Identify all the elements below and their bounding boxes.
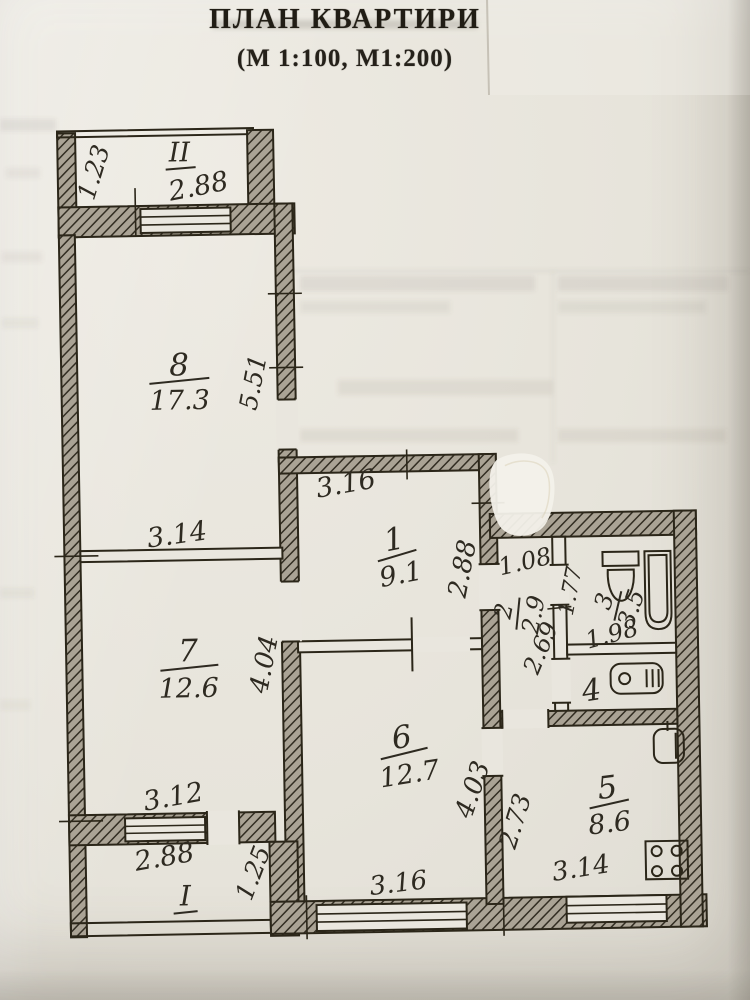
document-subtitle: (М 1:100, М1:200): [65, 45, 625, 73]
window-room8: [140, 207, 230, 233]
plan-drawing: II 2.88 1.23 8 17.3 5.51 3.14 7 12.6: [47, 120, 707, 943]
wall-mid-top: [279, 454, 496, 474]
floor-plan: II 2.88 1.23 8 17.3 5.51 3.14 7 12.6: [0, 0, 750, 1000]
wall-left-mid-vertical: [279, 457, 305, 907]
dim-balcony2-depth: 1.23: [72, 141, 116, 203]
room5-label: 5 8.6: [582, 768, 634, 842]
room6-label: 6 12.7: [371, 715, 442, 795]
door-wc: [551, 659, 571, 703]
balcony2-label: II: [167, 137, 191, 168]
door-room1-room6: [412, 616, 471, 671]
dim-room6-width: 3.16: [368, 865, 429, 902]
door-room8: [276, 399, 299, 449]
dim-room8-depth: 5.51: [234, 352, 273, 412]
dim-room7-depth: 4.04: [244, 633, 285, 697]
washbasin-icon: [610, 663, 663, 694]
room7-label: 7 12.6: [158, 633, 219, 705]
room5-number: 5: [595, 769, 619, 807]
balcony1-label: I: [179, 879, 193, 912]
bathtub-icon: [644, 551, 671, 629]
dim-balcony1-outer-width: 3.12: [141, 777, 206, 818]
dim-room1-depth: 2.88: [442, 538, 483, 602]
room4-number: 4: [578, 672, 603, 710]
room7-number: 7: [178, 633, 199, 669]
dim-balcony2-width: 2.88: [165, 166, 231, 208]
room8-label: 8 17.3: [149, 347, 210, 417]
label-underline: [174, 911, 198, 913]
room7-area: 12.6: [158, 673, 219, 705]
room8-area: 17.3: [149, 385, 210, 417]
window-room7: [125, 817, 205, 841]
wall-balcony1-open-edge: [71, 920, 271, 936]
door-room7: [279, 581, 302, 641]
dim-room2-width: 1.08: [496, 542, 554, 581]
scanned-page: ПЛАН КВАРТИРИ (М 1:100, М1:200): [0, 0, 750, 1000]
room5-area: 8.6: [586, 806, 632, 842]
room1-area: 9.1: [377, 555, 425, 594]
document-title: ПЛАН КВАРТИРИ: [65, 4, 625, 36]
wall-balcony2-right: [247, 130, 274, 208]
dim-room5-width: 3.14: [550, 849, 612, 888]
room1-label: 1 9.1: [370, 518, 425, 594]
door-balcony1: [207, 810, 240, 845]
white-patch: [489, 453, 556, 537]
door-kitchen: [502, 709, 548, 729]
title-block: ПЛАН КВАРТИРИ (М 1:100, М1:200): [65, 4, 625, 73]
room8-number: 8: [169, 347, 189, 383]
window-room6: [317, 902, 467, 931]
room6-area: 12.7: [377, 754, 442, 794]
wall-balcony2-open-edge: [57, 128, 253, 137]
window-room5: [566, 895, 666, 923]
